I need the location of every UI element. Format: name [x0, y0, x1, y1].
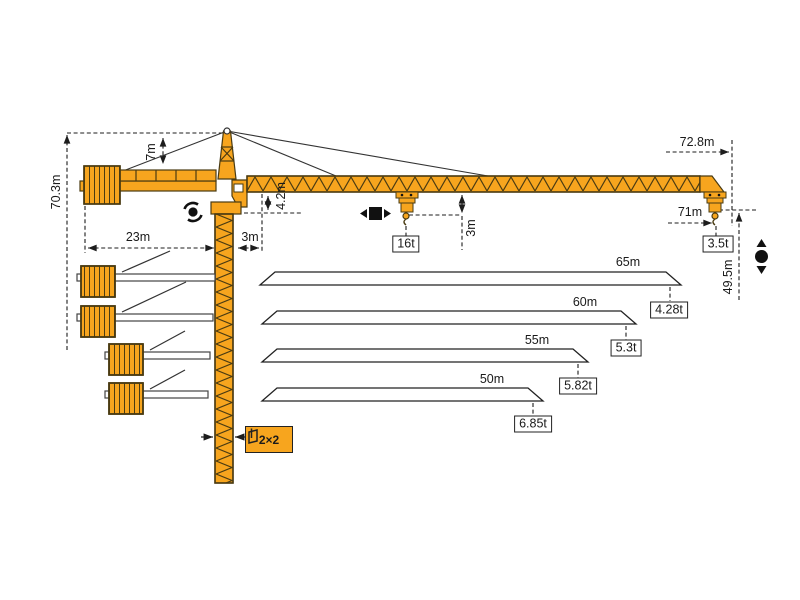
- counterweight-stack: [84, 166, 120, 204]
- trolley-tip: [704, 192, 726, 225]
- jib-config-2-length-label: 55m: [525, 333, 549, 347]
- jib-length-bar-50m: [262, 388, 543, 401]
- dim-hook-clearance-label: 3m: [464, 219, 478, 236]
- counterweight-option-1: [77, 251, 215, 297]
- jib-config-3-length-label: 50m: [480, 372, 504, 386]
- counterweight-option-4: [105, 370, 208, 414]
- apex-pin-icon: [224, 128, 230, 134]
- crane-drawing: [0, 0, 800, 600]
- jib-config-1-capacity-badge: 5.3t: [611, 340, 642, 357]
- tower-mast: [211, 202, 241, 483]
- jib-config-2-capacity-badge: 5.82t: [559, 378, 597, 395]
- dim-counterjib-radius-label: 23m: [126, 230, 150, 244]
- dim-total-height-label: 70.3m: [49, 175, 63, 210]
- mast-section-icon: [246, 427, 260, 445]
- dim-min-radius-label: 3m: [241, 230, 258, 244]
- jib-config-0-capacity-badge: 4.28t: [650, 302, 688, 319]
- hoist-icon: [755, 239, 768, 274]
- max-capacity-badge: 16t: [392, 236, 419, 253]
- hook-icon: [403, 213, 409, 225]
- slewing-icon: [185, 203, 202, 221]
- trolley-travel-icon: [360, 207, 391, 220]
- counterweight-option-3: [105, 331, 210, 375]
- jib-length-bar-55m: [262, 349, 588, 362]
- dim-jib-offset-label: 4.2m: [274, 182, 288, 210]
- jib-length-bar-65m: [260, 272, 681, 285]
- jib: [247, 176, 724, 192]
- jib-config-3-capacity-badge: 6.85t: [514, 416, 552, 433]
- tower-head: [218, 128, 236, 179]
- crane-diagram-canvas: 70.3m 7m 23m 3m 4.2m 3m 72.8m 71m 49.5m …: [0, 0, 800, 600]
- dim-tower-top-label: 7m: [144, 143, 158, 160]
- jib-config-1-length-label: 60m: [573, 295, 597, 309]
- jib-config-0-length-label: 65m: [616, 255, 640, 269]
- tip-capacity-badge: 3.5t: [703, 236, 734, 253]
- mast-section-label: 2×2: [259, 433, 279, 447]
- hook-icon: [712, 213, 718, 225]
- dim-max-hook-radius-label: 71m: [678, 205, 702, 219]
- dim-hook-height-label: 49.5m: [721, 260, 735, 295]
- dim-max-radius-label: 72.8m: [680, 135, 715, 149]
- mast-section-callout: 2×2: [245, 426, 293, 453]
- jib-length-bar-60m: [262, 311, 636, 324]
- jib-tip: [700, 176, 724, 192]
- trolley-mid: [396, 192, 418, 225]
